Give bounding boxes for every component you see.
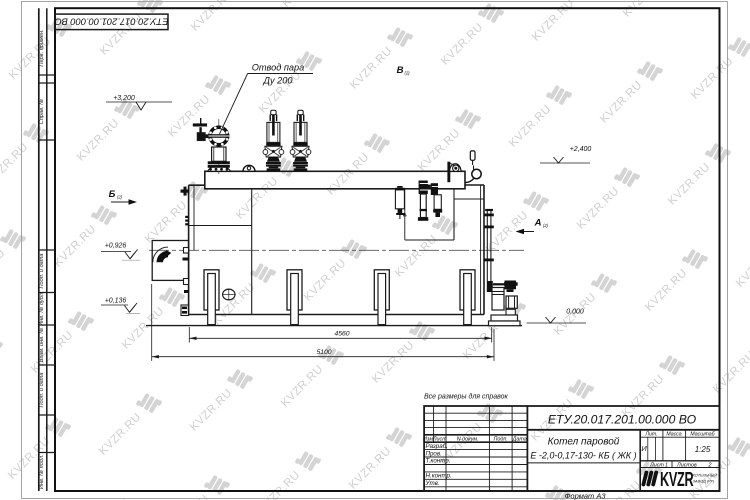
svg-text:Инв. № подл.: Инв. № подл. (39, 454, 45, 489)
svg-text:KVZR.RU: KVZR.RU (97, 411, 144, 458)
svg-text:KVZR.RU: KVZR.RU (165, 493, 212, 500)
svg-text:1:25: 1:25 (695, 445, 711, 454)
svg-text:+0,926: +0,926 (105, 243, 127, 250)
svg-text:Подп. и дата: Подп. и дата (39, 372, 45, 407)
svg-text:KVZR.RU: KVZR.RU (575, 185, 622, 232)
svg-text:KVZR.RU: KVZR.RU (0, 141, 31, 188)
svg-text:KVZR.RU: KVZR.RU (621, 0, 668, 20)
svg-text:KVZR.RU: KVZR.RU (439, 21, 486, 68)
svg-text:Ду 200: Ду 200 (262, 76, 293, 86)
svg-text:Б: Б (109, 189, 116, 200)
svg-text:Масса: Масса (666, 431, 681, 437)
svg-text:KVZR.RU: KVZR.RU (711, 349, 750, 396)
svg-text:KVZR.RU: KVZR.RU (643, 267, 690, 314)
svg-text:Перв. примен.: Перв. примен. (39, 29, 45, 66)
svg-text:Т.контр.: Т.контр. (426, 458, 451, 465)
svg-text:ЕТУ.20.017.201.00.000 ВО: ЕТУ.20.017.201.00.000 ВО (548, 413, 697, 427)
svg-text:Н.контр.: Н.контр. (426, 472, 452, 479)
svg-text:Справ. №: Справ. № (39, 99, 45, 124)
svg-text:KVZR.RU: KVZR.RU (598, 79, 645, 126)
svg-text:KVZR.RU: KVZR.RU (52, 223, 99, 270)
svg-text:KVZR.RU: KVZR.RU (370, 339, 417, 386)
svg-text:А: А (534, 218, 542, 229)
svg-text:Е -2,0-0,17-130- КБ ( ЖК ): Е -2,0-0,17-130- КБ ( ЖК ) (530, 451, 636, 461)
svg-text:Утв.: Утв. (425, 480, 440, 487)
svg-text:Взам. инв. №: Взам. инв. № (39, 328, 45, 363)
svg-text:Инв. № дубл.: Инв. № дубл. (39, 291, 45, 325)
svg-text:Разраб.: Разраб. (426, 443, 448, 450)
svg-text:КОТЕЛЬНЫЙ: КОТЕЛЬНЫЙ (693, 473, 718, 478)
svg-text:KVZR.RU: KVZR.RU (256, 469, 303, 500)
svg-text:KVZR.RU: KVZR.RU (530, 0, 577, 44)
svg-text:KVZR.RU: KVZR.RU (188, 387, 235, 434)
svg-text:Дата: Дата (512, 436, 527, 442)
svg-text:KVZR.RU: KVZR.RU (0, 247, 8, 294)
svg-text:KVZR.RU: KVZR.RU (143, 199, 190, 246)
svg-text:Масштаб: Масштаб (690, 431, 715, 437)
svg-text:KVZR.RU: KVZR.RU (507, 103, 554, 150)
svg-text:KVZR.RU: KVZR.RU (348, 45, 395, 92)
svg-text:Лит.: Лит. (644, 431, 657, 437)
svg-text:KVZR.RU: KVZR.RU (734, 243, 750, 290)
svg-text:4560: 4560 (334, 331, 349, 338)
svg-text:KVZR.RU: KVZR.RU (6, 435, 53, 482)
svg-text:+2,400: +2,400 (570, 146, 592, 153)
svg-text:Подп.: Подп. (494, 436, 508, 442)
svg-text:(2): (2) (117, 195, 123, 200)
svg-text:Отвод пара: Отвод пара (252, 63, 305, 73)
svg-text:0,000: 0,000 (566, 308, 584, 315)
svg-text:KVZR.RU: KVZR.RU (689, 55, 736, 102)
svg-text:KVZR: KVZR (660, 468, 693, 491)
svg-text:KVZR.RU: KVZR.RU (75, 117, 122, 164)
svg-text:В: В (397, 65, 404, 76)
svg-text:Все размеры для справок: Все размеры для справок (424, 393, 509, 401)
svg-text:Лист: Лист (432, 436, 447, 442)
svg-text:KVZR.RU: KVZR.RU (189, 0, 236, 34)
svg-text:Пров.: Пров. (426, 450, 442, 457)
svg-text:KVZR.RU: KVZR.RU (279, 363, 326, 410)
svg-text:Формат А3: Формат А3 (564, 491, 606, 500)
svg-text:ЗАВОД (РУ): ЗАВОД (РУ) (693, 479, 715, 484)
svg-text:+3,200: +3,200 (113, 95, 135, 102)
svg-text:2: 2 (708, 462, 712, 468)
svg-text:(2): (2) (404, 71, 410, 76)
svg-text:Подп. и дата: Подп. и дата (39, 253, 45, 288)
svg-text:KVZR.RU: KVZR.RU (29, 329, 76, 376)
svg-text:KVZR.RU: KVZR.RU (325, 151, 372, 198)
svg-text:N докум.: N докум. (457, 436, 479, 442)
svg-text:KVZR.RU: KVZR.RU (234, 175, 281, 222)
svg-text:+0,136: +0,136 (105, 298, 127, 305)
svg-text:Котел паровой: Котел паровой (548, 437, 620, 448)
svg-text:KVZR.RU: KVZR.RU (666, 161, 713, 208)
svg-text:KVZR.RU: KVZR.RU (302, 257, 349, 304)
svg-text:И: И (641, 444, 647, 453)
svg-text:KVZR.RU: KVZR.RU (166, 93, 213, 140)
svg-text:KVZR.RU: KVZR.RU (347, 445, 394, 492)
svg-text:ЕТУ.20.017.201.00.000 ВО: ЕТУ.20.017.201.00.000 ВО (54, 17, 169, 28)
svg-text:(2): (2) (543, 223, 549, 228)
svg-text:5100: 5100 (316, 349, 331, 356)
svg-text:KVZR.RU: KVZR.RU (120, 305, 167, 352)
